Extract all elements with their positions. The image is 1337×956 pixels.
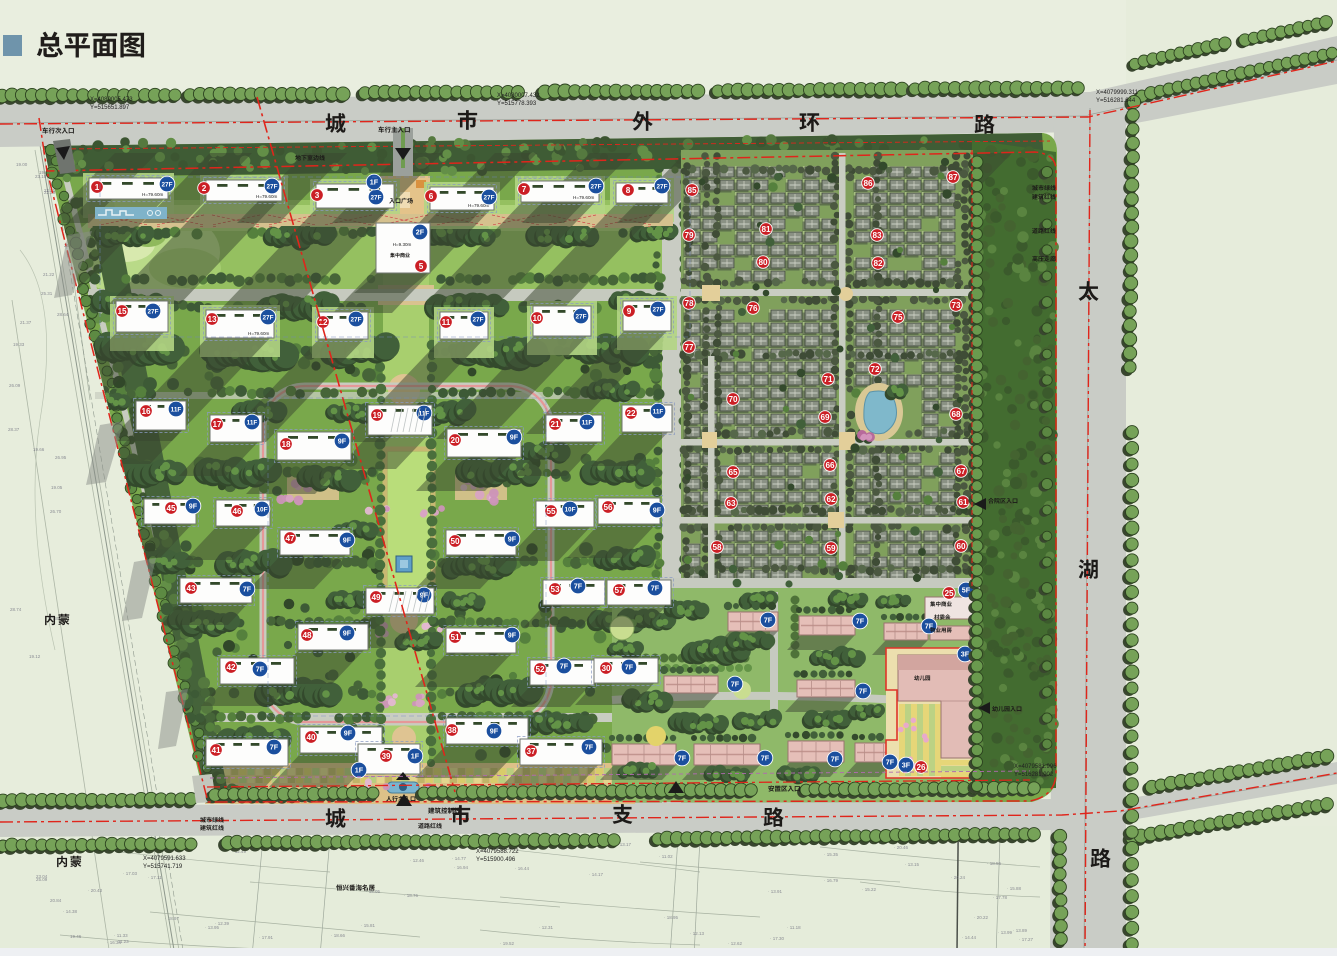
svg-text:7F: 7F xyxy=(625,662,634,671)
svg-text:7F: 7F xyxy=(270,742,279,751)
svg-text:· 19.52: · 19.52 xyxy=(500,941,515,946)
svg-text:46: 46 xyxy=(232,507,242,516)
svg-text:· 13.99: · 13.99 xyxy=(998,930,1013,935)
svg-text:55: 55 xyxy=(546,507,556,516)
svg-text:3F: 3F xyxy=(902,760,911,769)
svg-text:· 13.95: · 13.95 xyxy=(205,925,220,930)
svg-text:19.00: 19.00 xyxy=(16,162,28,167)
svg-text:7F: 7F xyxy=(574,581,583,590)
svg-text:9: 9 xyxy=(627,307,632,316)
svg-text:49: 49 xyxy=(371,593,381,602)
svg-text:11: 11 xyxy=(442,318,451,327)
svg-text:9F: 9F xyxy=(189,501,198,510)
svg-text:21.22: 21.22 xyxy=(43,272,55,277)
svg-text:· 20.46: · 20.46 xyxy=(894,845,909,850)
svg-text:9F: 9F xyxy=(490,726,499,735)
svg-text:76: 76 xyxy=(748,304,758,313)
svg-text:H=79.60m: H=79.60m xyxy=(142,192,163,197)
svg-text:21: 21 xyxy=(550,420,560,429)
svg-text:9F: 9F xyxy=(343,628,352,637)
svg-text:7F: 7F xyxy=(243,584,252,593)
svg-text:7F: 7F xyxy=(585,742,594,751)
svg-text:27F: 27F xyxy=(161,181,172,188)
svg-text:60: 60 xyxy=(956,542,966,551)
svg-text:19.33: 19.33 xyxy=(13,342,25,347)
svg-text:· 18.76: · 18.76 xyxy=(404,893,419,898)
svg-text:67: 67 xyxy=(956,467,966,476)
svg-text:· 18.95: · 18.95 xyxy=(664,915,679,920)
svg-text:7F: 7F xyxy=(731,679,740,688)
svg-text:7F: 7F xyxy=(678,753,687,762)
svg-text:77: 77 xyxy=(684,343,694,352)
svg-text:11F: 11F xyxy=(582,419,593,426)
svg-text:5: 5 xyxy=(419,262,424,271)
svg-text:41: 41 xyxy=(211,746,221,755)
svg-text:59: 59 xyxy=(826,544,836,553)
svg-text:17: 17 xyxy=(212,420,222,429)
svg-text:· 18.66: · 18.66 xyxy=(331,933,346,938)
svg-text:28.37: 28.37 xyxy=(8,427,20,432)
svg-text:57: 57 xyxy=(614,586,624,595)
svg-text:27F: 27F xyxy=(370,194,381,201)
svg-text:11F: 11F xyxy=(247,419,258,426)
svg-text:13: 13 xyxy=(207,315,217,324)
svg-text:· 16.79: · 16.79 xyxy=(824,878,839,883)
svg-text:23.04: 23.04 xyxy=(36,874,48,879)
svg-text:68: 68 xyxy=(951,410,961,419)
svg-text:· 13.89: · 13.89 xyxy=(1013,928,1028,933)
svg-text:· 14.38: · 14.38 xyxy=(63,909,78,914)
svg-text:9F: 9F xyxy=(653,505,662,514)
svg-text:6: 6 xyxy=(429,192,434,201)
svg-text:26.95: 26.95 xyxy=(55,455,67,460)
svg-text:27F: 27F xyxy=(590,183,601,190)
svg-text:85: 85 xyxy=(687,186,697,195)
svg-text:26: 26 xyxy=(916,763,926,772)
svg-text:· 12.46: · 12.46 xyxy=(410,858,425,863)
svg-text:· 17.03: · 17.03 xyxy=(123,871,138,876)
svg-text:10F: 10F xyxy=(256,506,267,513)
svg-text:· 11.18: · 11.18 xyxy=(787,925,801,930)
svg-text:62: 62 xyxy=(826,495,836,504)
svg-text:66: 66 xyxy=(825,461,835,470)
svg-text:· 14.44: · 14.44 xyxy=(962,935,977,940)
svg-text:83: 83 xyxy=(872,231,882,240)
svg-text:· 16.44: · 16.44 xyxy=(515,866,530,871)
svg-text:9F: 9F xyxy=(508,534,517,543)
svg-text:65: 65 xyxy=(728,468,738,477)
svg-text:9F: 9F xyxy=(508,630,517,639)
svg-text:22.39: 22.39 xyxy=(44,190,56,195)
svg-text:· 12.62: · 12.62 xyxy=(728,941,743,946)
svg-text:27F: 27F xyxy=(147,308,158,315)
svg-text:39: 39 xyxy=(381,752,391,761)
svg-text:20.84: 20.84 xyxy=(50,898,62,903)
svg-text:72: 72 xyxy=(870,365,880,374)
svg-text:1F: 1F xyxy=(355,765,364,774)
svg-text:H=9.30m: H=9.30m xyxy=(393,242,412,247)
svg-text:· 20.24: · 20.24 xyxy=(951,875,966,880)
svg-text:81: 81 xyxy=(761,225,771,234)
svg-text:19.66: 19.66 xyxy=(33,447,45,452)
svg-text:50: 50 xyxy=(450,537,460,546)
svg-text:52: 52 xyxy=(535,665,545,674)
svg-text:82: 82 xyxy=(873,259,883,268)
svg-text:27F: 27F xyxy=(575,313,586,320)
svg-text:· 15.35: · 15.35 xyxy=(824,852,839,857)
svg-text:42: 42 xyxy=(226,663,236,672)
svg-text:9F: 9F xyxy=(338,436,347,445)
svg-text:27F: 27F xyxy=(350,316,361,323)
svg-text:· 15.88: · 15.88 xyxy=(1007,886,1022,891)
svg-text:22: 22 xyxy=(626,409,636,418)
svg-text:30: 30 xyxy=(601,664,611,673)
svg-text:· 20.22: · 20.22 xyxy=(974,915,989,920)
svg-text:87: 87 xyxy=(948,173,958,182)
svg-text:· 18.56: · 18.56 xyxy=(987,861,1002,866)
svg-text:80: 80 xyxy=(758,258,768,267)
svg-text:3F: 3F xyxy=(961,649,970,658)
svg-text:21.37: 21.37 xyxy=(20,320,32,325)
svg-text:· 14.77: · 14.77 xyxy=(452,856,467,861)
svg-text:7F: 7F xyxy=(859,686,868,695)
svg-text:1F: 1F xyxy=(411,751,420,760)
svg-text:· 13.15: · 13.15 xyxy=(905,862,920,867)
svg-text:· 18.97: · 18.97 xyxy=(165,916,180,921)
svg-text:56: 56 xyxy=(603,503,613,512)
svg-text:37: 37 xyxy=(526,747,536,756)
svg-text:9F: 9F xyxy=(343,535,352,544)
svg-text:27F: 27F xyxy=(262,314,273,321)
svg-text:75: 75 xyxy=(893,313,903,322)
svg-text:47: 47 xyxy=(285,534,295,543)
svg-text:· 17.27: · 17.27 xyxy=(1019,937,1034,942)
svg-text:26.09: 26.09 xyxy=(9,383,21,388)
svg-text:· 17.91: · 17.91 xyxy=(259,935,274,940)
svg-text:· 16.34: · 16.34 xyxy=(107,940,122,945)
svg-text:H=79.60m: H=79.60m xyxy=(573,195,594,200)
svg-text:28.74: 28.74 xyxy=(10,607,22,612)
svg-text:48: 48 xyxy=(302,631,312,640)
svg-text:7F: 7F xyxy=(886,757,895,766)
svg-text:19.46: 19.46 xyxy=(70,934,82,939)
svg-text:19.05: 19.05 xyxy=(51,485,63,490)
svg-text:7F: 7F xyxy=(256,664,265,673)
svg-text:· 13.91: · 13.91 xyxy=(768,889,783,894)
svg-text:9F: 9F xyxy=(510,432,519,441)
svg-text:11F: 11F xyxy=(653,408,664,415)
svg-text:15: 15 xyxy=(117,307,127,316)
svg-text:71: 71 xyxy=(823,375,833,384)
svg-text:1F: 1F xyxy=(370,177,379,186)
svg-text:28.64: 28.64 xyxy=(57,312,69,317)
svg-text:19: 19 xyxy=(372,411,382,420)
svg-text:20: 20 xyxy=(450,436,460,445)
svg-text:· 16.94: · 16.94 xyxy=(454,865,469,870)
svg-text:38: 38 xyxy=(447,726,457,735)
svg-text:3: 3 xyxy=(315,191,320,200)
svg-text:73: 73 xyxy=(951,301,961,310)
svg-text:27F: 27F xyxy=(266,183,277,190)
svg-text:40: 40 xyxy=(306,733,316,742)
svg-text:9F: 9F xyxy=(420,590,429,599)
svg-text:43: 43 xyxy=(186,584,196,593)
svg-text:63: 63 xyxy=(726,499,736,508)
svg-text:· 12.13: · 12.13 xyxy=(690,931,705,936)
svg-text:· 17.11: · 17.11 xyxy=(148,875,162,880)
svg-text:7F: 7F xyxy=(764,615,773,624)
svg-text:53: 53 xyxy=(550,585,560,594)
svg-text:10F: 10F xyxy=(564,506,575,513)
svg-text:58: 58 xyxy=(712,543,722,552)
svg-text:11F: 11F xyxy=(171,406,182,413)
svg-text:78: 78 xyxy=(684,299,694,308)
svg-text:· 15.81: · 15.81 xyxy=(361,923,376,928)
svg-text:· 12.31: · 12.31 xyxy=(539,925,554,930)
svg-text:· 14.17: · 14.17 xyxy=(589,872,604,877)
svg-text:51: 51 xyxy=(450,633,460,642)
svg-text:27F: 27F xyxy=(652,306,663,313)
svg-text:7F: 7F xyxy=(560,661,569,670)
svg-text:70: 70 xyxy=(728,395,738,404)
svg-text:25.31: 25.31 xyxy=(41,291,53,296)
svg-text:2F: 2F xyxy=(416,227,425,236)
svg-text:27F: 27F xyxy=(656,183,667,190)
svg-text:9F: 9F xyxy=(344,728,353,737)
svg-text:86: 86 xyxy=(863,179,873,188)
svg-text:7F: 7F xyxy=(761,753,770,762)
svg-text:18: 18 xyxy=(281,440,291,449)
svg-text:61: 61 xyxy=(958,498,968,507)
svg-text:1: 1 xyxy=(95,183,100,192)
svg-text:12: 12 xyxy=(318,318,328,327)
svg-text:· 17.30: · 17.30 xyxy=(770,936,785,941)
svg-text:· 20.43: · 20.43 xyxy=(88,888,103,893)
svg-text:69: 69 xyxy=(820,413,830,422)
svg-text:26.70: 26.70 xyxy=(50,509,62,514)
svg-text:7: 7 xyxy=(522,185,527,194)
svg-text:· 11.02: · 11.02 xyxy=(659,854,673,859)
svg-text:10: 10 xyxy=(532,314,542,323)
svg-text:27F: 27F xyxy=(483,194,494,201)
svg-text:2: 2 xyxy=(202,184,207,193)
svg-text:H=79.60m: H=79.60m xyxy=(256,194,277,199)
svg-text:45: 45 xyxy=(166,504,176,513)
svg-text:· 15.22: · 15.22 xyxy=(862,887,877,892)
svg-text:19.12: 19.12 xyxy=(29,654,41,659)
svg-text:27F: 27F xyxy=(472,316,483,323)
svg-text:· 11.33: · 11.33 xyxy=(114,933,128,938)
svg-text:25: 25 xyxy=(944,589,954,598)
svg-text:79: 79 xyxy=(684,231,694,240)
svg-text:8: 8 xyxy=(626,186,631,195)
svg-text:7F: 7F xyxy=(831,754,840,763)
svg-text:7F: 7F xyxy=(856,616,865,625)
svg-text:16: 16 xyxy=(141,407,151,416)
svg-text:H=79.60m: H=79.60m xyxy=(248,331,269,336)
svg-text:7F: 7F xyxy=(651,583,660,592)
svg-text:· 17.78: · 17.78 xyxy=(993,895,1008,900)
